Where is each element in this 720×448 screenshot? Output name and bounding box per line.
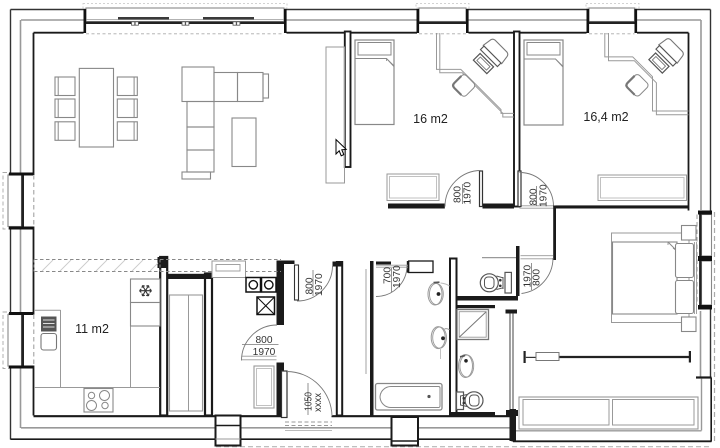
svg-text:16 m2: 16 m2: [413, 112, 448, 126]
svg-text:1970: 1970: [253, 347, 276, 358]
svg-text:11 m2: 11 m2: [75, 322, 109, 336]
svg-text:800: 800: [532, 269, 543, 286]
svg-text:1970: 1970: [539, 184, 550, 207]
svg-text:800: 800: [256, 335, 273, 346]
svg-text:1970: 1970: [463, 182, 474, 205]
svg-text:xxxx: xxxx: [313, 393, 324, 412]
svg-text:1970: 1970: [392, 265, 403, 288]
svg-text:16,4 m2: 16,4 m2: [583, 110, 628, 124]
svg-text:1970: 1970: [314, 273, 325, 296]
